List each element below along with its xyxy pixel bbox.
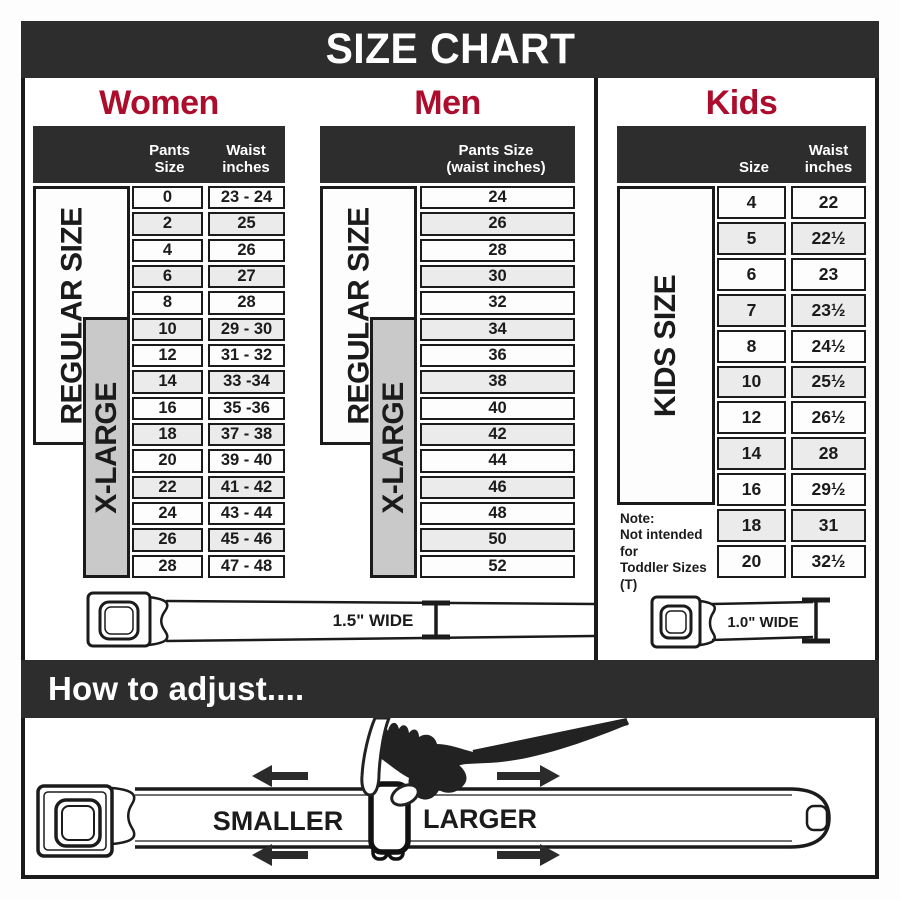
pants-size-cell: 28: [420, 239, 575, 262]
pants-size-cell: 46: [420, 476, 575, 499]
arrow-left-icon: [252, 765, 308, 787]
waist-inches-cell: 22½: [791, 222, 866, 255]
width-measure-icon: [802, 600, 830, 641]
table-row: 30: [420, 265, 575, 288]
table-row: 24: [420, 186, 575, 209]
size-cell: 8: [717, 330, 786, 363]
kids-belt-width-label: 1.0" WIDE: [727, 614, 798, 631]
pants-size-cell: 28: [132, 555, 203, 578]
width-measure-icon: [422, 603, 450, 637]
women-xlarge-label: X-LARGE: [83, 317, 130, 578]
size-cell: 5: [717, 222, 786, 255]
pants-size-cell: 22: [132, 476, 203, 499]
waist-inches-cell: 35 -36: [208, 397, 285, 420]
seatbelt-buckle-icon: [652, 597, 715, 647]
title-banner: SIZE CHART: [21, 21, 879, 78]
table-row: 36: [420, 344, 575, 367]
pants-size-cell: 16: [132, 397, 203, 420]
table-row: 20 39 - 40: [132, 449, 285, 472]
table-row: 18 31: [717, 509, 866, 542]
table-row: 10 25½: [717, 366, 866, 399]
seatbelt-buckle-icon: [88, 593, 167, 646]
table-row: 5 22½: [717, 222, 866, 255]
kids-size-table: 4 22 5 22½ 6 23 7 23½ 8 24½: [717, 186, 866, 578]
table-row: 12 31 - 32: [132, 344, 285, 367]
kids-col2-header: Waist inches: [791, 143, 866, 177]
table-row: 20 32½: [717, 545, 866, 578]
waist-inches-cell: 26: [208, 239, 285, 262]
waist-inches-cell: 23½: [791, 294, 866, 327]
pants-size-cell: 26: [132, 528, 203, 551]
table-row: 24 43 - 44: [132, 502, 285, 525]
table-row: 42: [420, 423, 575, 446]
waist-inches-cell: 41 - 42: [208, 476, 285, 499]
adult-belt-illustration: 1.5" WIDE: [33, 588, 595, 656]
table-row: 0 23 - 24: [132, 186, 285, 209]
pants-size-cell: 24: [420, 186, 575, 209]
pants-size-cell: 32: [420, 291, 575, 314]
table-row: 22 41 - 42: [132, 476, 285, 499]
panel-divider: [594, 78, 598, 660]
table-row: 26 45 - 46: [132, 528, 285, 551]
size-chart-infographic: SIZE CHART Women Men Kids Pants Size Wai…: [0, 0, 900, 900]
men-col-header: Pants Size (waist inches): [417, 143, 575, 177]
pants-size-cell: 0: [132, 186, 203, 209]
table-row: 38: [420, 370, 575, 393]
pants-size-cell: 14: [132, 370, 203, 393]
table-row: 4 26: [132, 239, 285, 262]
table-row: 28: [420, 239, 575, 262]
size-cell: 20: [717, 545, 786, 578]
larger-label: LARGER: [423, 804, 537, 834]
waist-inches-cell: 45 - 46: [208, 528, 285, 551]
kids-table-header: Size Waist inches: [617, 126, 866, 183]
size-cell: 16: [717, 473, 786, 506]
kids-belt-illustration: 1.0" WIDE: [617, 588, 866, 656]
pants-size-cell: 2: [132, 212, 203, 235]
waist-inches-cell: 47 - 48: [208, 555, 285, 578]
size-cell: 4: [717, 186, 786, 219]
pants-size-cell: 26: [420, 212, 575, 235]
men-xlarge-label: X-LARGE: [370, 317, 417, 578]
size-cell: 6: [717, 258, 786, 291]
table-row: 7 23½: [717, 294, 866, 327]
waist-inches-cell: 25½: [791, 366, 866, 399]
waist-inches-cell: 31: [791, 509, 866, 542]
waist-inches-cell: 33 -34: [208, 370, 285, 393]
waist-inches-cell: 28: [791, 437, 866, 470]
pants-size-cell: 36: [420, 344, 575, 367]
table-row: 46: [420, 476, 575, 499]
table-row: 6 27: [132, 265, 285, 288]
pants-size-cell: 50: [420, 528, 575, 551]
men-table-header: Pants Size (waist inches): [320, 126, 575, 183]
pants-size-cell: 30: [420, 265, 575, 288]
men-section-title: Men: [320, 84, 575, 123]
table-row: 44: [420, 449, 575, 472]
pants-size-cell: 12: [132, 344, 203, 367]
waist-inches-cell: 27: [208, 265, 285, 288]
waist-inches-cell: 22: [791, 186, 866, 219]
table-row: 14 28: [717, 437, 866, 470]
table-row: 4 22: [717, 186, 866, 219]
waist-inches-cell: 29 - 30: [208, 318, 285, 341]
table-row: 2 25: [132, 212, 285, 235]
women-col2-header: Waist inches: [207, 143, 285, 177]
size-cell: 18: [717, 509, 786, 542]
size-cell: 10: [717, 366, 786, 399]
table-row: 48: [420, 502, 575, 525]
waist-inches-cell: 28: [208, 291, 285, 314]
waist-inches-cell: 32½: [791, 545, 866, 578]
pants-size-cell: 6: [132, 265, 203, 288]
pants-size-cell: 42: [420, 423, 575, 446]
women-col1-header: Pants Size: [132, 143, 207, 177]
women-section-title: Women: [33, 84, 285, 123]
pants-size-cell: 4: [132, 239, 203, 262]
waist-inches-cell: 23 - 24: [208, 186, 285, 209]
waist-inches-cell: 23: [791, 258, 866, 291]
pants-size-cell: 52: [420, 555, 575, 578]
waist-inches-cell: 37 - 38: [208, 423, 285, 446]
waist-inches-cell: 39 - 40: [208, 449, 285, 472]
table-row: 32: [420, 291, 575, 314]
adjust-illustration: SMALLER LARGER: [21, 718, 879, 875]
waist-inches-cell: 31 - 32: [208, 344, 285, 367]
pants-size-cell: 20: [132, 449, 203, 472]
table-row: 52: [420, 555, 575, 578]
belt-tip-slot: [807, 806, 827, 830]
table-row: 40: [420, 397, 575, 420]
how-to-banner: How to adjust....: [21, 660, 879, 718]
kids-section-title: Kids: [617, 84, 866, 123]
table-row: 50: [420, 528, 575, 551]
seatbelt-buckle-icon: [38, 786, 134, 856]
table-row: 28 47 - 48: [132, 555, 285, 578]
table-row: 12 26½: [717, 401, 866, 434]
table-row: 10 29 - 30: [132, 318, 285, 341]
table-row: 26: [420, 212, 575, 235]
pants-size-cell: 38: [420, 370, 575, 393]
waist-inches-cell: 25: [208, 212, 285, 235]
waist-inches-cell: 24½: [791, 330, 866, 363]
page-title: SIZE CHART: [325, 25, 575, 74]
table-row: 6 23: [717, 258, 866, 291]
table-row: 18 37 - 38: [132, 423, 285, 446]
smaller-label: SMALLER: [213, 806, 344, 836]
pants-size-cell: 34: [420, 318, 575, 341]
pants-size-cell: 10: [132, 318, 203, 341]
table-row: 8 28: [132, 291, 285, 314]
women-size-table: 0 23 - 24 2 25 4 26 6 27 8 28: [132, 186, 285, 578]
how-to-title: How to adjust....: [48, 670, 304, 708]
size-cell: 7: [717, 294, 786, 327]
size-cell: 14: [717, 437, 786, 470]
table-row: 14 33 -34: [132, 370, 285, 393]
pants-size-cell: 24: [132, 502, 203, 525]
pants-size-cell: 40: [420, 397, 575, 420]
toddler-note: Note: Not intended for Toddler Sizes (T): [620, 511, 722, 593]
pants-size-cell: 18: [132, 423, 203, 446]
adult-belt-width-label: 1.5" WIDE: [333, 611, 414, 630]
table-row: 16 35 -36: [132, 397, 285, 420]
table-row: 16 29½: [717, 473, 866, 506]
pants-size-cell: 48: [420, 502, 575, 525]
waist-inches-cell: 43 - 44: [208, 502, 285, 525]
arrow-right-icon: [497, 765, 560, 787]
kids-size-label: KIDS SIZE: [617, 186, 715, 505]
pants-size-cell: 8: [132, 291, 203, 314]
table-row: 8 24½: [717, 330, 866, 363]
table-row: 34: [420, 318, 575, 341]
kids-col1-header: Size: [717, 160, 791, 177]
waist-inches-cell: 26½: [791, 401, 866, 434]
pants-size-cell: 44: [420, 449, 575, 472]
waist-inches-cell: 29½: [791, 473, 866, 506]
women-table-header: Pants Size Waist inches: [33, 126, 285, 183]
men-size-table: 24 26 28 30 32 34 36: [420, 186, 575, 578]
size-cell: 12: [717, 401, 786, 434]
